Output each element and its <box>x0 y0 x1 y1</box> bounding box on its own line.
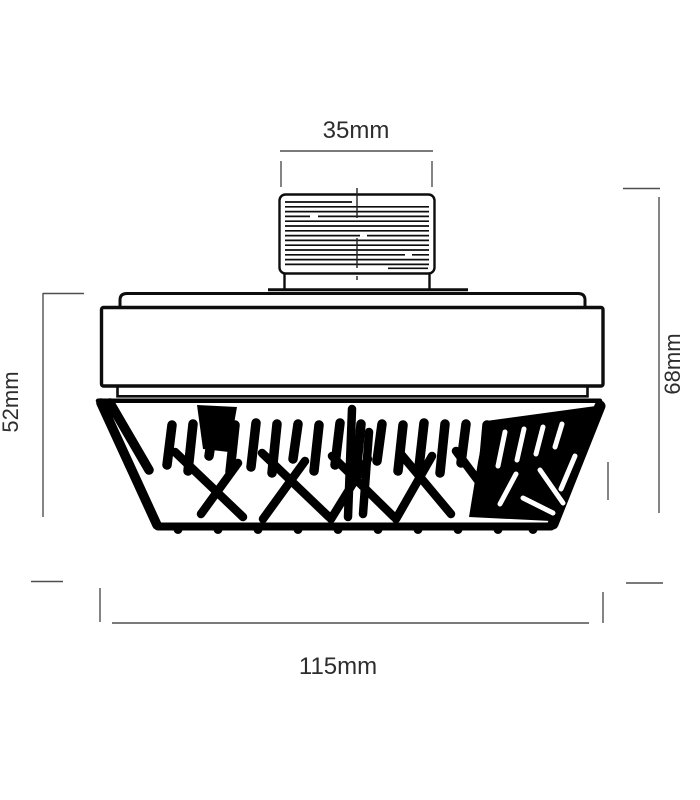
dim-68mm-lines <box>623 189 663 584</box>
fin-left-edge <box>101 403 157 525</box>
device-outline <box>102 195 604 397</box>
main-body <box>102 308 604 387</box>
dim-label-bottom-width: 115mm <box>278 655 398 679</box>
dim-label-right-height: 68mm <box>661 309 685 419</box>
dim-label-top-width: 35mm <box>296 119 416 143</box>
dim-35mm-lines <box>280 151 433 187</box>
dim-52mm-lines <box>31 293 84 582</box>
fin-array <box>98 401 600 534</box>
dim-label-left-height: 52mm <box>0 347 23 457</box>
top-flange <box>120 294 585 308</box>
dimension-diagram: 35mm 52mm 68mm 115mm <box>0 0 700 800</box>
